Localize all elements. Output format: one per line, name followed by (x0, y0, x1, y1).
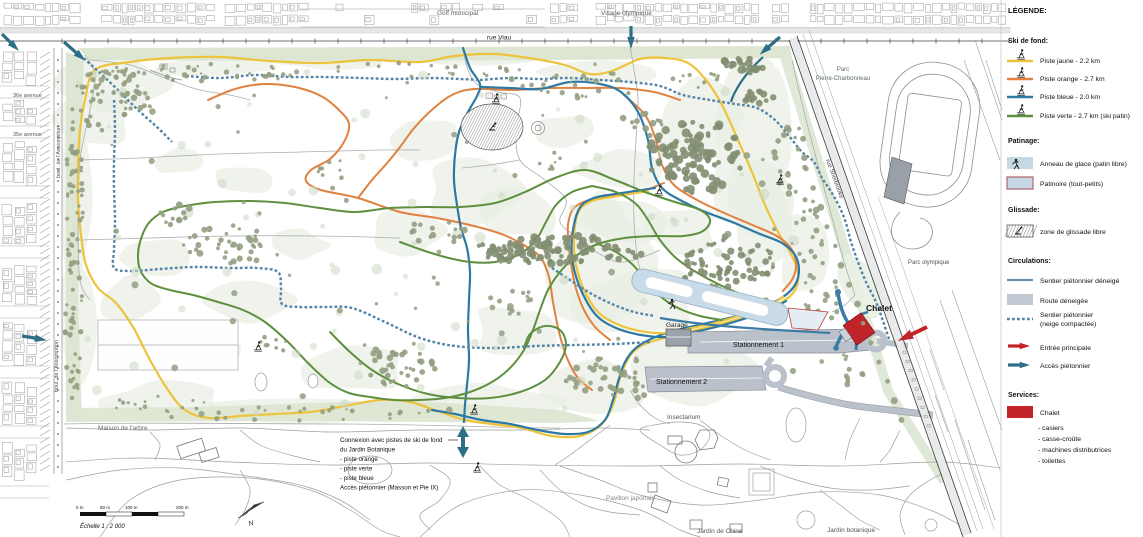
svg-text:Anneau de glace (patin libre): Anneau de glace (patin libre) (1040, 161, 1127, 168)
svg-text:Connexion avec pistes de ski d: Connexion avec pistes de ski de fond (340, 437, 443, 444)
svg-text:Patinage:: Patinage: (1008, 138, 1040, 145)
svg-text:36e avenue: 36e avenue (13, 93, 42, 99)
svg-text:- casiers: - casiers (1038, 425, 1064, 432)
svg-text:du Jardin Botanique: du Jardin Botanique (340, 447, 396, 454)
svg-text:Glissade:: Glissade: (1008, 207, 1040, 214)
svg-text:Parc: Parc (837, 67, 849, 73)
svg-text:- piste orange: - piste orange (340, 456, 378, 463)
svg-text:35e avenue: 35e avenue (13, 132, 42, 138)
svg-text:Sentier piétonnier déneigé: Sentier piétonnier déneigé (1040, 278, 1120, 285)
svg-text:Stationnement 1: Stationnement 1 (733, 342, 784, 349)
svg-text:- piste verte: - piste verte (340, 466, 373, 473)
svg-text:Insectarium: Insectarium (667, 414, 701, 421)
svg-text:Maison de l'arbre: Maison de l'arbre (98, 425, 148, 432)
svg-text:Village olympique: Village olympique (601, 10, 652, 17)
svg-text:boul. de l'Assomption: boul. de l'Assomption (54, 340, 60, 392)
svg-text:boul. de l'Assomption: boul. de l'Assomption (56, 126, 62, 178)
svg-text:Sentier piétonnier: Sentier piétonnier (1040, 312, 1094, 319)
svg-text:Échelle 1 : 2 000: Échelle 1 : 2 000 (80, 523, 125, 530)
svg-text:- casse-croûte: - casse-croûte (1038, 436, 1081, 443)
svg-text:Golf municipal: Golf municipal (437, 10, 479, 17)
svg-text:Pierre-Charbonneau: Pierre-Charbonneau (816, 76, 870, 82)
svg-text:Piste bleue - 2.0 km: Piste bleue - 2.0 km (1040, 94, 1100, 101)
svg-text:Accès piétonnier: Accès piétonnier (1040, 363, 1091, 370)
svg-text:Jardin de Chine: Jardin de Chine (697, 528, 743, 535)
svg-text:LÉGENDE:: LÉGENDE: (1008, 6, 1047, 15)
svg-text:rue Viau: rue Viau (487, 35, 511, 42)
svg-text:Garage: Garage (666, 322, 688, 329)
svg-text:Route déneigée: Route déneigée (1040, 298, 1088, 305)
svg-text:Entrée principale: Entrée principale (1040, 345, 1091, 352)
svg-text:Circulations:: Circulations: (1008, 258, 1051, 265)
svg-text:Ski de fond:: Ski de fond: (1008, 38, 1048, 45)
svg-text:50 m: 50 m (100, 505, 110, 510)
svg-text:- machines distributrices: - machines distributrices (1038, 447, 1112, 454)
svg-text:Accès piétonnier (Masson et Pi: Accès piétonnier (Masson et Pie IX) (340, 485, 438, 492)
svg-text:Jardin botanique: Jardin botanique (827, 527, 875, 534)
svg-text:Piste orange - 2.7 km: Piste orange - 2.7 km (1040, 76, 1105, 83)
svg-text:zone de glissade libre: zone de glissade libre (1040, 229, 1106, 236)
svg-text:Chalet: Chalet (866, 303, 892, 313)
svg-text:- toilettes: - toilettes (1038, 458, 1066, 465)
svg-text:- piste bleue: - piste bleue (340, 475, 374, 482)
svg-text:Piste jaune - 2.2 km: Piste jaune - 2.2 km (1040, 58, 1100, 65)
svg-text:Stationnement 2: Stationnement 2 (656, 379, 707, 386)
svg-text:Services:: Services: (1008, 392, 1039, 399)
svg-text:200 m: 200 m (176, 505, 189, 510)
svg-text:Pavillon japonais: Pavillon japonais (606, 495, 656, 502)
svg-text:0 m: 0 m (76, 505, 84, 510)
svg-text:Patinoire (tout-petits): Patinoire (tout-petits) (1040, 181, 1103, 188)
svg-text:100 m: 100 m (125, 505, 138, 510)
svg-text:Piste verte - 2.7 km (ski pati: Piste verte - 2.7 km (ski patin) (1040, 113, 1130, 120)
svg-text:Chalet: Chalet (1040, 410, 1060, 417)
svg-text:Parc olympique: Parc olympique (908, 260, 950, 266)
svg-text:(neige compactée): (neige compactée) (1040, 321, 1096, 328)
